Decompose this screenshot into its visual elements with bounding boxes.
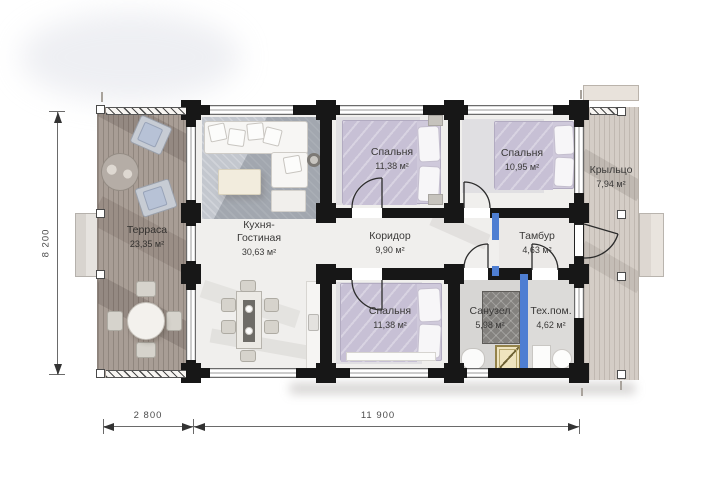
log-joint — [181, 203, 201, 223]
plate — [245, 305, 253, 313]
door-opening-bedroom3 — [352, 268, 382, 280]
room-area: 4,63 м² — [519, 245, 555, 255]
window-kitchen-south — [208, 368, 298, 378]
room-label-kitchen-living: Кухня- Гостиная 30,63 м² — [237, 219, 281, 257]
deck-post — [617, 370, 626, 379]
nightstand — [428, 194, 443, 205]
room-label-bedroom-top-right: Спальня 10,95 м² — [501, 147, 543, 172]
window-kitchen-west — [186, 288, 196, 362]
dining-chair-terrace — [136, 281, 156, 297]
tick-mark — [101, 92, 103, 102]
window-bathroom-south — [465, 368, 490, 378]
dining-chair — [221, 298, 236, 312]
dimension-tick — [579, 419, 580, 434]
window-living-west-2 — [186, 224, 196, 263]
kitchen-sink — [308, 314, 319, 331]
window-tech-east — [574, 286, 584, 320]
dimension-arrow-left — [194, 423, 205, 431]
dining-chair — [264, 298, 279, 312]
log-joint — [181, 264, 201, 284]
log-joint — [444, 363, 464, 383]
room-area: 5,98 м² — [470, 320, 511, 330]
wall-bedroom1-bedroom2 — [448, 115, 460, 208]
window-bedroom1-north — [338, 105, 425, 115]
dimension-value-house: 11 900 — [361, 410, 395, 421]
window-bedroom3-south — [348, 368, 430, 378]
terrace-steps-inner — [86, 214, 97, 276]
shadow-under-house — [290, 383, 635, 394]
chair-cushion — [137, 121, 163, 147]
dimension-arrow-up — [54, 112, 62, 123]
dimension-arrow-right — [568, 423, 579, 431]
entry-door-panel — [574, 224, 584, 257]
room-name: Коридор — [369, 230, 410, 243]
log-joint — [569, 264, 589, 284]
sofa-cushion — [283, 155, 303, 175]
sofa-cushion — [227, 128, 246, 147]
tick-mark — [581, 388, 583, 396]
wall-bedroom3-bathroom — [448, 280, 460, 368]
log-joint — [316, 363, 336, 383]
plate — [105, 163, 118, 176]
room-name: Спальня — [369, 305, 411, 318]
partition-bathroom-tech — [520, 274, 528, 368]
terrace-edge-hatch-top — [106, 107, 186, 115]
door-bathroom — [464, 244, 488, 268]
window-bedroom2-east — [574, 125, 584, 195]
room-label-bathroom: Санузел 5,98 м² — [470, 305, 511, 330]
pillow — [553, 124, 575, 155]
dimension-value-terrace: 2 800 — [134, 410, 163, 421]
log-joint — [569, 100, 589, 120]
room-name: Спальня — [501, 147, 543, 160]
room-area: 11,38 м² — [369, 320, 411, 330]
porch-canopy — [583, 85, 639, 101]
door-opening-bedroom1 — [352, 208, 382, 218]
door-bedroom2 — [464, 182, 490, 208]
dimension-line-depth — [57, 112, 58, 375]
shower-inner-frame — [499, 349, 517, 369]
deck-post — [617, 107, 626, 116]
dining-chair — [264, 320, 279, 334]
terrace-edge-hatch-bottom — [106, 370, 186, 378]
room-area: 11,38 м² — [371, 161, 413, 171]
log-joint — [444, 100, 464, 120]
plate — [122, 168, 134, 180]
room-label-bedroom-bottom: Спальня 11,38 м² — [369, 305, 411, 330]
sofa-ottoman — [271, 190, 306, 212]
room-label-bedroom-top-left: Спальня 11,38 м² — [371, 146, 413, 171]
room-area: 23,35 м² — [127, 239, 167, 249]
room-name: Кухня- — [237, 219, 281, 232]
partition-corridor-tambour-stub — [492, 266, 499, 276]
dining-chair — [240, 350, 256, 362]
room-name: Санузел — [470, 305, 511, 318]
dining-chair — [240, 280, 256, 292]
chair-cushion — [142, 186, 167, 211]
porch-edge-hatch — [590, 107, 617, 115]
window-living-west-1 — [186, 125, 196, 202]
door-bedroom1 — [352, 178, 382, 208]
plate — [245, 327, 253, 335]
log-joint — [316, 100, 336, 120]
room-label-porch: Крыльцо 7,94 м² — [590, 164, 633, 189]
lounge-chair — [134, 178, 178, 218]
dining-chair — [221, 320, 236, 334]
sofa-cushion — [207, 122, 227, 142]
room-name: Спальня — [371, 146, 413, 159]
deck-post — [617, 272, 626, 281]
floor-plan: Терраса 23,35 м² Кухня- Гостиная 30,63 м… — [0, 0, 710, 502]
log-joint — [444, 264, 464, 284]
room-area: 30,63 м² — [237, 247, 281, 257]
deck-post — [96, 209, 105, 218]
round-table — [127, 302, 165, 340]
room-name: Крыльцо — [590, 164, 633, 177]
toilet — [461, 348, 485, 370]
room-label-tambour: Тамбур 4,63 м² — [519, 230, 555, 255]
porch-steps-inner — [651, 214, 663, 276]
log-joint — [569, 363, 589, 383]
log-joint — [444, 203, 464, 223]
pillow — [417, 125, 441, 162]
deck-post — [96, 105, 105, 114]
room-area: 10,95 м² — [501, 162, 543, 172]
room-area: 9,90 м² — [369, 245, 410, 255]
window-bedroom2-north — [466, 105, 555, 115]
dining-chair-terrace — [166, 311, 182, 331]
sofa-cushion — [246, 122, 265, 141]
coffee-table — [218, 169, 261, 195]
deck-post — [96, 270, 105, 279]
dimension-arrow-left — [103, 423, 114, 431]
dimension-value-depth: 8 200 — [41, 229, 52, 258]
room-area: 7,94 м² — [590, 179, 633, 189]
nightstand — [428, 115, 443, 126]
partition-corridor-tambour — [492, 213, 499, 240]
door-opening-bedroom2 — [464, 208, 490, 218]
room-area: 4,62 м² — [530, 320, 571, 330]
dining-chair-terrace — [107, 311, 123, 331]
pillow — [417, 287, 442, 322]
tick-mark — [580, 90, 582, 99]
room-name: Тех.пом. — [530, 305, 571, 318]
deck-post — [617, 210, 626, 219]
dimension-line-width — [103, 426, 579, 427]
log-joint — [316, 264, 336, 284]
room-name: Терраса — [127, 224, 167, 237]
door-entry — [584, 222, 620, 258]
door-opening-bathroom — [464, 268, 488, 280]
dining-table — [236, 291, 262, 349]
deck-post — [96, 369, 105, 378]
tick-mark — [620, 381, 622, 390]
washing-machine — [532, 345, 551, 369]
side-table — [307, 153, 321, 167]
room-name: Гостиная — [237, 232, 281, 245]
log-joint — [569, 203, 589, 223]
room-label-terrace: Терраса 23,35 м² — [127, 224, 167, 249]
room-label-tech-room: Тех.пом. 4,62 м² — [530, 305, 571, 330]
dimension-arrow-down — [54, 364, 62, 375]
pillow — [553, 156, 575, 187]
haze-top-left — [20, 12, 240, 102]
dining-chair-terrace — [136, 342, 156, 358]
dimension-arrow-right — [182, 423, 193, 431]
bedroom-bench — [346, 352, 436, 361]
window-kitchen-north — [208, 105, 295, 115]
wall-kitchen-bedroom1 — [320, 115, 332, 208]
wall-kitchen-bedroom3 — [320, 280, 332, 368]
room-label-corridor: Коридор 9,90 м² — [369, 230, 410, 255]
log-joint — [316, 203, 336, 223]
room-name: Тамбур — [519, 230, 555, 243]
